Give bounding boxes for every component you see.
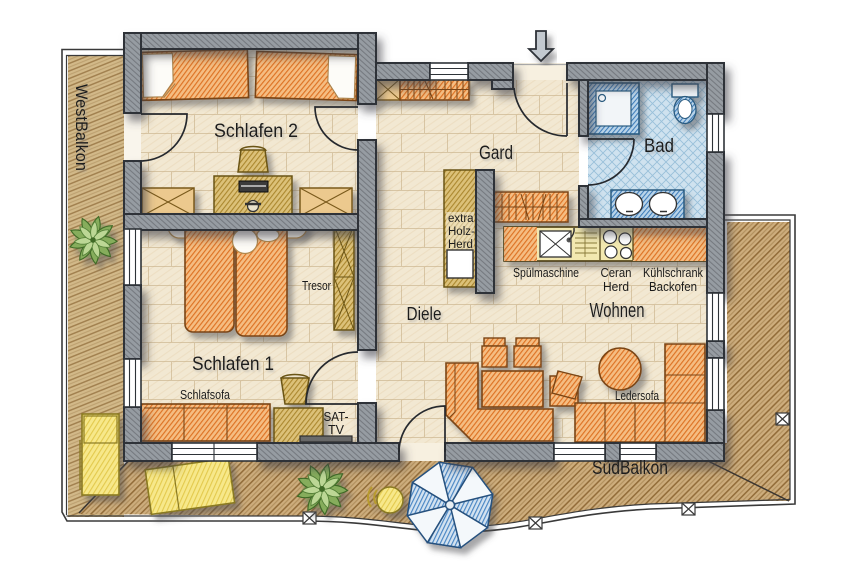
svg-text:Schlafen 2: Schlafen 2 (214, 120, 298, 142)
svg-text:Kühlschrank: Kühlschrank (643, 266, 704, 280)
svg-text:Backofen: Backofen (649, 280, 697, 294)
svg-text:Diele: Diele (407, 304, 442, 324)
svg-text:Bad: Bad (644, 136, 674, 157)
svg-text:SAT-: SAT- (324, 410, 349, 424)
svg-text:Herd: Herd (448, 239, 473, 251)
svg-text:Ledersofa: Ledersofa (615, 389, 659, 403)
svg-text:Schlafen 1: Schlafen 1 (192, 353, 274, 375)
svg-text:Holz-: Holz- (448, 226, 475, 238)
svg-text:Tresor: Tresor (302, 279, 331, 293)
svg-text:Ceran: Ceran (601, 266, 632, 280)
svg-text:SüdBalkon: SüdBalkon (592, 457, 668, 479)
svg-text:Wohnen: Wohnen (590, 300, 645, 322)
svg-text:TV: TV (328, 423, 345, 437)
svg-text:WestBalkon: WestBalkon (72, 84, 91, 171)
svg-text:Schlafsofa: Schlafsofa (180, 388, 230, 402)
svg-text:Gard: Gard (479, 143, 513, 164)
svg-text:Herd: Herd (603, 280, 629, 294)
svg-text:Spülmaschine: Spülmaschine (513, 266, 579, 280)
svg-text:extra: extra (448, 213, 474, 225)
